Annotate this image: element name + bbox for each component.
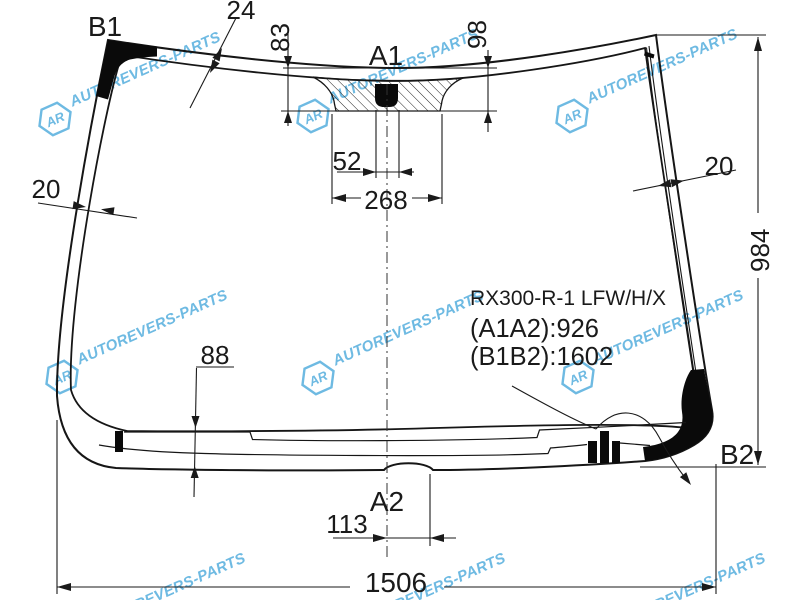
- dim-overall-height-value: 984: [745, 229, 775, 272]
- connector-bar: [588, 441, 597, 463]
- connector-bar: [612, 441, 620, 463]
- label-a1: A1: [369, 40, 403, 71]
- dim-overall-width-value: 1506: [365, 567, 427, 598]
- part-b1b2-measure: (B1B2):1602: [470, 343, 613, 371]
- label-a2: A2: [370, 486, 404, 517]
- connector-bar: [600, 431, 609, 463]
- windshield-diagram: AR AUTOREVERS-PARTS: [0, 0, 799, 600]
- dim-frit-width-value: 268: [364, 185, 407, 215]
- dim-strip-offset-value: 88: [201, 340, 230, 370]
- dim-right-edge-band-value: 20: [705, 151, 734, 181]
- dim-mirror-width-value: 52: [333, 146, 362, 176]
- part-a1a2-measure: (A1A2):926: [470, 315, 599, 343]
- label-b2: B2: [720, 439, 754, 470]
- dim-top-right-drop-value: 98: [462, 20, 492, 49]
- dim-top-edge-band-value: 24: [227, 0, 256, 25]
- label-b1: B1: [88, 11, 122, 42]
- dim-bump-offset-value: 113: [326, 509, 367, 539]
- dim-top-left-drop-value: 83: [265, 23, 295, 52]
- part-code: RX300-R-1 LFW/H/X: [470, 287, 666, 310]
- strip-end-block: [115, 431, 123, 452]
- dim-left-edge-band-value: 20: [32, 174, 61, 204]
